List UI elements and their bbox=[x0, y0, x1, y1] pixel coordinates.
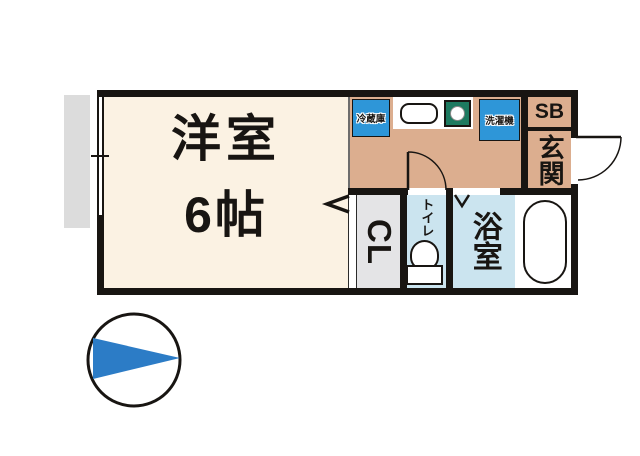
living-room-name: 洋室 bbox=[104, 114, 348, 164]
entrance-label: 玄関 bbox=[528, 130, 571, 190]
bathroom-text: 浴室 bbox=[466, 211, 501, 271]
shoe-box-label: SB bbox=[528, 97, 571, 127]
toilet-label: トイレ bbox=[407, 198, 446, 242]
toilet-door bbox=[408, 152, 446, 190]
shoe-box-text: SB bbox=[535, 100, 564, 124]
floorplan-canvas: 冷蔵庫 洗濯機 bbox=[0, 0, 640, 456]
entrance-text: 玄関 bbox=[536, 134, 563, 186]
living-room-label: 洋室 6帖 bbox=[104, 114, 348, 240]
bathroom-label: 浴室 bbox=[453, 200, 515, 282]
entrance-door bbox=[576, 137, 621, 180]
compass-icon bbox=[88, 314, 180, 406]
closet-text: CL bbox=[360, 219, 398, 265]
toilet-text: トイレ bbox=[420, 198, 434, 237]
closet-label: CL bbox=[357, 195, 400, 288]
living-room-size: 6帖 bbox=[104, 190, 348, 240]
